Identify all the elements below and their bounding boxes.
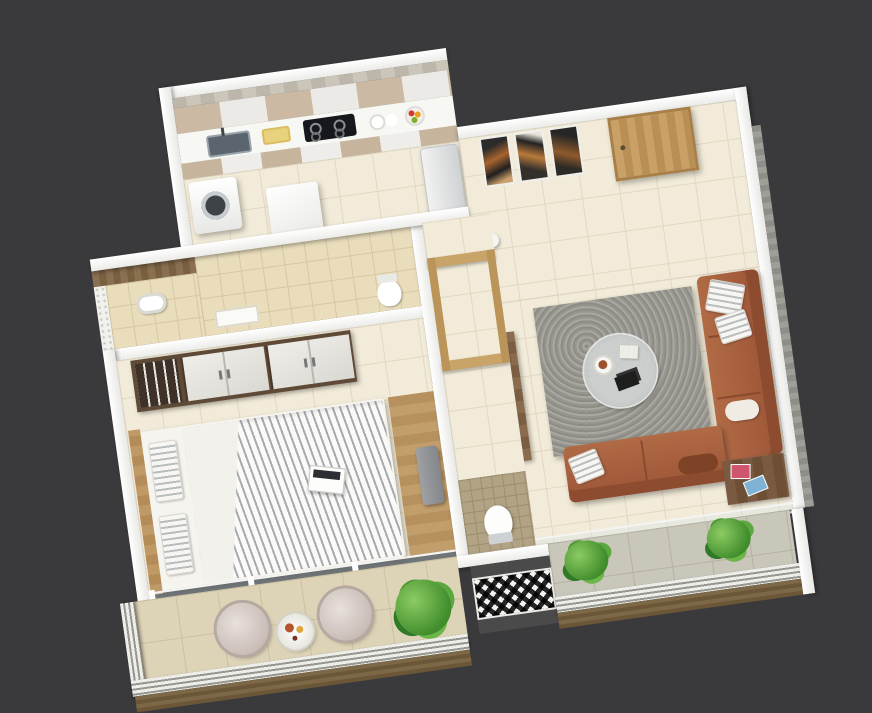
toilet-tank <box>377 273 398 284</box>
room-wc <box>458 471 536 555</box>
sofa-seat-seam <box>640 440 648 480</box>
snack-plate <box>592 354 615 377</box>
laptop <box>307 465 346 495</box>
art-frame <box>481 136 513 185</box>
laptop-screen-icon <box>313 469 341 480</box>
door-seam <box>222 352 230 396</box>
wardrobe-door-unit <box>180 346 269 401</box>
wardrobe-door-unit <box>265 334 354 389</box>
magazine <box>732 465 750 478</box>
render-canvas: { "scene": { "title": "3D isometric floo… <box>0 0 872 709</box>
cutting-board <box>261 126 291 146</box>
fruit-icon <box>408 110 415 117</box>
burner-icon <box>334 128 345 139</box>
handle-icon <box>218 370 222 379</box>
apartment-floor-plan <box>50 6 827 698</box>
breakfast-tray-icon <box>284 623 294 633</box>
dark-backdrop <box>0 0 872 709</box>
plates <box>368 113 386 131</box>
gas-hob <box>302 113 357 142</box>
door-handle-icon <box>620 145 626 151</box>
patterned-cement-tile <box>474 570 555 618</box>
bed-pillow <box>148 439 184 502</box>
entry-door <box>607 106 699 181</box>
wardrobe-hanger-section <box>135 358 183 407</box>
books <box>614 371 639 392</box>
door-seam <box>307 340 315 384</box>
magazine <box>744 476 767 496</box>
sofa-seat-seam <box>717 391 761 399</box>
food-icon <box>598 360 608 370</box>
washer-door-icon <box>200 190 232 222</box>
fruit-bowl <box>404 105 427 128</box>
room-ensuite <box>91 255 205 351</box>
room-bedroom <box>103 304 469 601</box>
washing-machine <box>188 176 243 234</box>
art-frame <box>516 131 548 180</box>
bed-pillow <box>158 513 194 576</box>
sofa-armrest-cushion <box>677 452 719 475</box>
corner-side-table <box>722 453 790 505</box>
room-living <box>502 266 794 545</box>
white-card <box>620 345 638 359</box>
throw-pillow <box>714 308 753 345</box>
burner-icon <box>310 131 321 142</box>
throw-pillow <box>724 398 760 423</box>
faucet-icon <box>221 128 225 136</box>
service-duct <box>470 555 559 633</box>
handle-icon <box>304 358 308 367</box>
throw-pillow <box>567 448 605 485</box>
